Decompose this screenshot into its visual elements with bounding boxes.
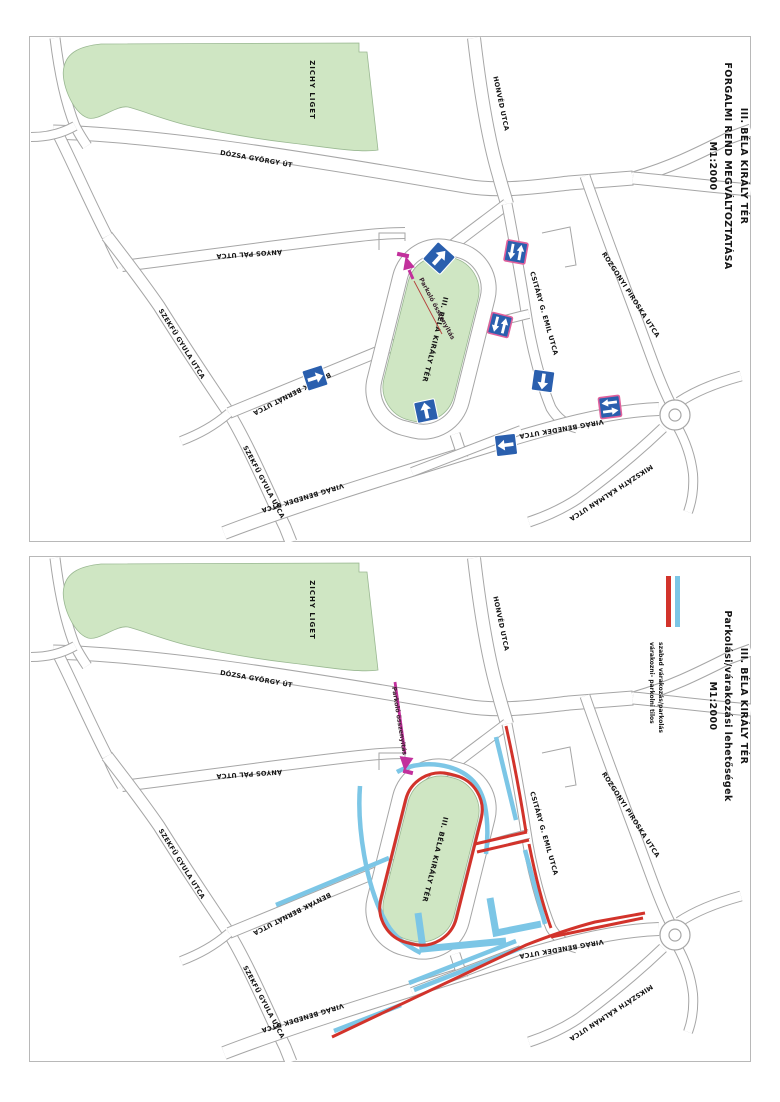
one-way-sign-left	[494, 433, 517, 456]
park-label: ZICHY LIGET	[308, 580, 316, 640]
title-scale: M1:2000	[707, 681, 718, 730]
parking-map-panel: ZICHY LIGET DÓZSA GYÖRGY ÚT HONVÉD UTCA …	[29, 556, 751, 1062]
legend-no-parking-swatch	[666, 576, 671, 627]
title-line-2: FORGALMI REND MEGVÁLTOZTATÁSA	[722, 62, 734, 270]
two-way-traffic-sign-middle	[487, 312, 512, 337]
legend-no-parking-label: várakozni- parkolni tilos	[648, 642, 655, 724]
title-scale: M1:2000	[707, 141, 718, 190]
base-street-map: ZICHY LIGET DÓZSA GYÖRGY ÚT HONVÉD UTCA …	[30, 557, 752, 1063]
title-line-2: Parkolási/várakozási lehetőségek	[722, 610, 733, 802]
park-label: ZICHY LIGET	[308, 60, 316, 120]
roundabout	[660, 400, 690, 430]
base-street-map-clone-slot: ZICHY LIGET DÓZSA GYÖRGY ÚT HONVÉD UTCA …	[30, 557, 752, 1063]
legend-free-parking-label: szabad várakozás/parkolás	[657, 642, 664, 733]
plan-sheet: ZICHY LIGET DÓZSA GYÖRGY ÚT HONVÉD UTCA …	[0, 0, 780, 1102]
legend-free-parking-swatch	[675, 576, 680, 627]
traffic-order-map-panel: ZICHY LIGET DÓZSA GYÖRGY ÚT HONVÉD UTCA …	[29, 36, 751, 542]
two-way-traffic-sign-horizontal	[598, 395, 621, 418]
title-line-1: III. BÉLA KIRÁLY TÉR	[738, 108, 750, 225]
roundabout	[660, 920, 690, 950]
one-way-sign-down	[531, 369, 555, 393]
title-line-1: III. BÉLA KIRÁLY TÉR	[738, 648, 750, 765]
one-way-sign-up	[414, 399, 439, 424]
two-way-traffic-sign-upper	[504, 240, 528, 264]
base-street-map: ZICHY LIGET DÓZSA GYÖRGY ÚT HONVÉD UTCA …	[30, 37, 752, 543]
